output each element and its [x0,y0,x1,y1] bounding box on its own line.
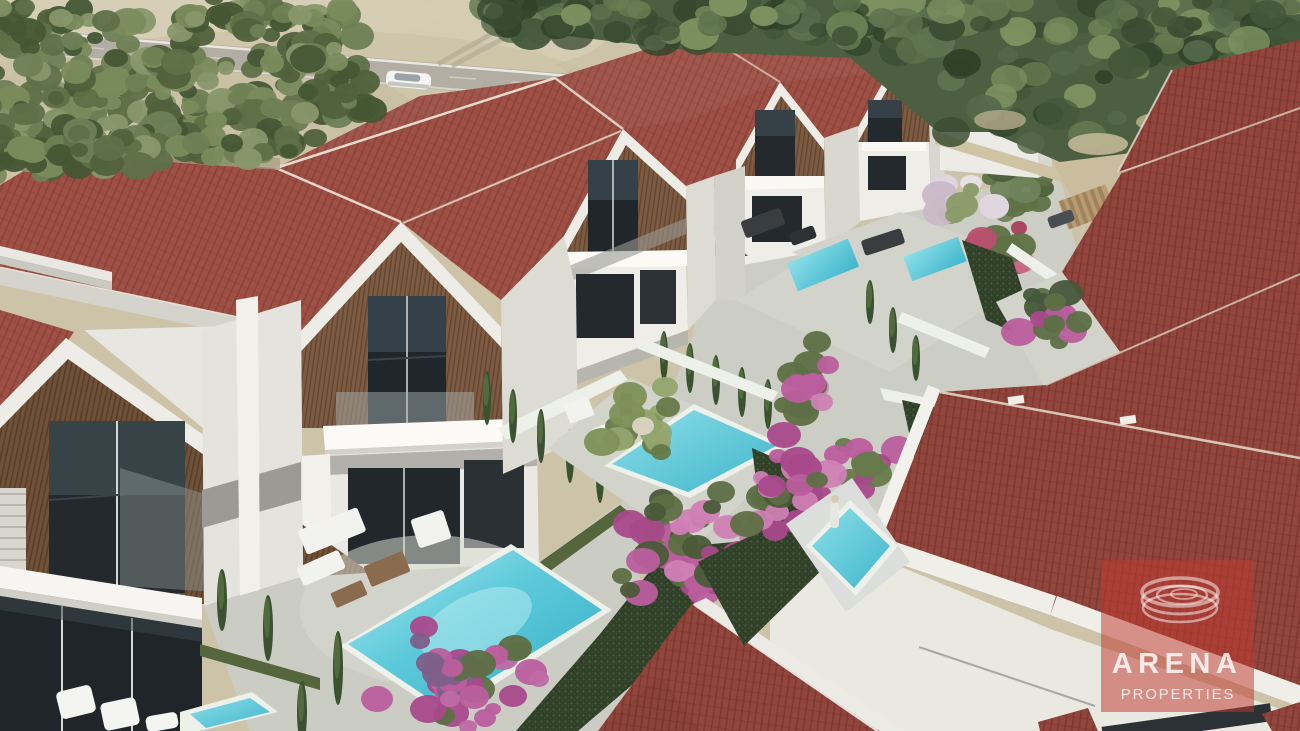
svg-text:ARENA: ARENA [1112,648,1243,680]
svg-text:PROPERTIES: PROPERTIES [1121,686,1235,703]
